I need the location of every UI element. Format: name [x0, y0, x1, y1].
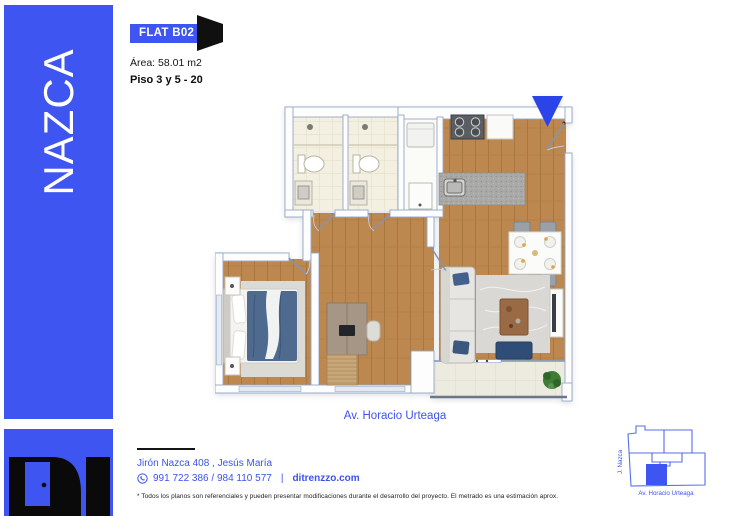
minimap-street-front: Av. Horacio Urteaga: [638, 490, 694, 497]
unit-badge: FLAT B02: [130, 24, 203, 43]
di-logo-icon: [4, 429, 113, 516]
floor-plan: [215, 95, 575, 407]
location-minimap: J. Nazca Av. Horacio Urteaga: [608, 422, 708, 500]
ottoman: [496, 342, 532, 359]
footer-contact: Jirón Nazca 408 , Jesús María 991 722 38…: [137, 456, 360, 486]
plant: [543, 371, 561, 389]
desk-chair: [367, 321, 380, 341]
street-label: Av. Horacio Urteaga: [215, 410, 575, 422]
phone-circle-icon: [137, 473, 148, 484]
phone-numbers: 991 722 386 / 984 110 577: [153, 471, 272, 486]
brand-bar: NAZCA: [4, 5, 113, 419]
slatted-bench: [327, 355, 357, 385]
separator: |: [281, 471, 284, 486]
tv: [552, 294, 556, 332]
brand-name: NAZCA: [35, 48, 83, 195]
website-link[interactable]: ditrenzzo.com: [292, 471, 359, 486]
coffee-table: [500, 299, 528, 335]
monitor: [339, 325, 355, 336]
unit-highlight: [646, 464, 667, 485]
door-icon: [196, 13, 226, 53]
address: Jirón Nazca 408 , Jesús María: [137, 456, 360, 471]
brand-logo: [4, 429, 113, 516]
floor-label: Piso 3 y 5 - 20: [130, 74, 203, 86]
flyer-page: { "brand": { "name": "NAZCA", "logo_text…: [0, 0, 730, 516]
area-label: Área: 58.01 m2: [130, 57, 202, 69]
tv-console: [550, 289, 563, 337]
minimap-street-side: J. Nazca: [617, 449, 624, 474]
footer-divider: [137, 448, 195, 450]
